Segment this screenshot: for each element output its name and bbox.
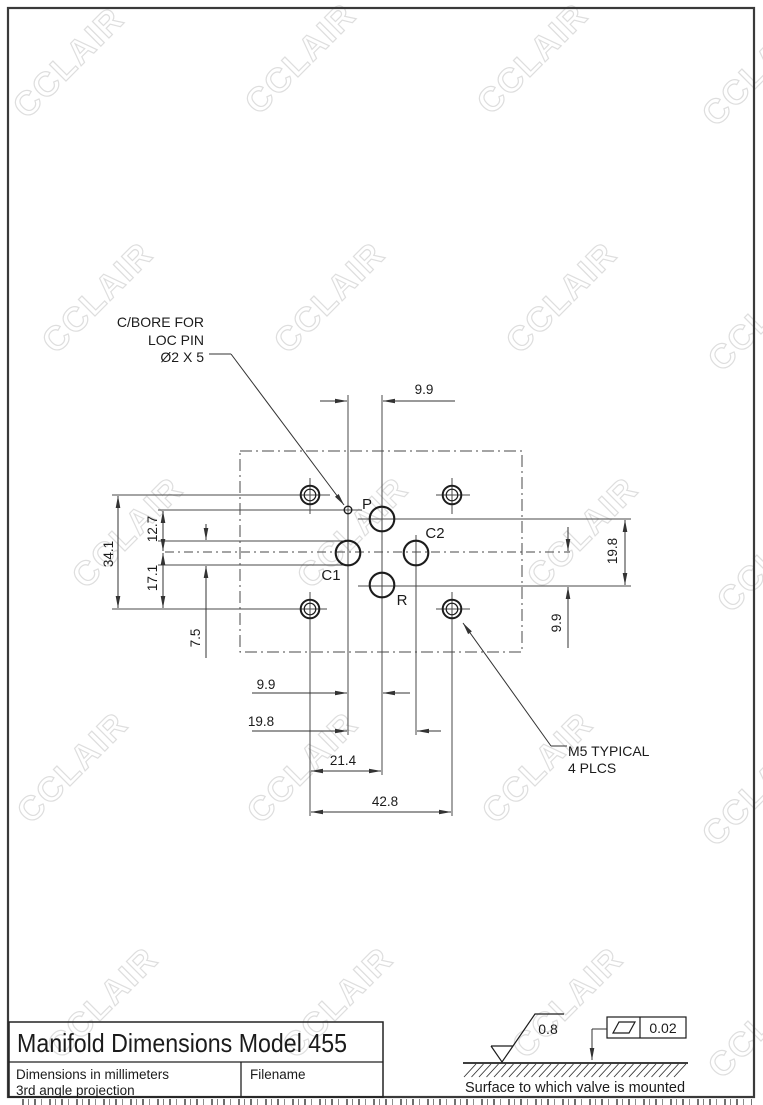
units-note: Dimensions in millimeters: [16, 1067, 169, 1082]
cut-off-text-strip: [22, 1099, 752, 1105]
dim-bottom-c1-c2: 19.8: [248, 714, 274, 729]
dim-port-width: 7.5: [188, 629, 203, 648]
drawing-title: Manifold Dimensions Model 455: [17, 1028, 347, 1058]
roughness-value: 0.8: [538, 1021, 558, 1037]
watermark-text: CCLAIR: [290, 470, 416, 596]
dim-bottom-bolt-center: 21.4: [330, 753, 357, 768]
watermark-text: CCLAIR: [238, 0, 364, 122]
cbore-leader: [231, 354, 344, 505]
watermark-text: CCLAIR: [505, 940, 631, 1066]
watermark-text: CCLAIR: [35, 235, 161, 361]
dim-top-width: 9.9: [415, 382, 434, 397]
label-port-c2: C2: [425, 525, 444, 542]
watermark-text: CCLAIR: [65, 470, 191, 596]
surface-note: Surface to which valve is mounted: [465, 1080, 685, 1096]
watermark-text: CCLAIR: [267, 235, 393, 361]
watermark-text: CCLAIR: [520, 470, 646, 596]
dim-bottom-bolt-span: 42.8: [372, 794, 398, 809]
m5-note-line2: 4 PLCS: [568, 760, 616, 776]
label-port-c1: C1: [321, 567, 340, 584]
watermark-layer: CCLAIRCCLAIRCCLAIRCCLAIRCCLAIRCCLAIRCCLA…: [6, 0, 763, 1086]
watermark-text: CCLAIR: [10, 705, 136, 831]
flatness-icon: [613, 1022, 635, 1033]
dim-right-lower: 9.9: [549, 614, 564, 633]
dim-right-ports: 19.8: [605, 538, 620, 564]
watermark-text: CCLAIR: [695, 728, 763, 854]
dim-left-lower: 17.1: [145, 565, 160, 591]
filename-label: Filename: [250, 1067, 306, 1082]
dim-left-upper: 12.7: [145, 516, 160, 542]
cbore-note-line3: Ø2 X 5: [160, 349, 204, 365]
manifold-drawing: CCLAIRCCLAIRCCLAIRCCLAIRCCLAIRCCLAIRCCLA…: [0, 0, 763, 1105]
watermark-text: CCLAIR: [470, 0, 596, 122]
surface-hatching: [464, 1064, 686, 1077]
m5-leader: [463, 623, 551, 746]
m5-note-line1: M5 TYPICAL: [568, 743, 650, 759]
surface-finish-detail: 0.8 0.02 Surface to which valve is mount…: [463, 1014, 688, 1096]
projection-note: 3rd angle projection: [16, 1083, 135, 1098]
cbore-note-line2: LOC PIN: [148, 332, 204, 348]
label-port-r: R: [397, 592, 408, 609]
watermark-text: CCLAIR: [6, 0, 132, 126]
watermark-text: CCLAIR: [499, 235, 625, 361]
flatness-value: 0.02: [649, 1020, 676, 1036]
label-port-p: P: [362, 496, 372, 513]
dim-left-overall: 34.1: [101, 541, 116, 567]
drawing-sheet: CCLAIRCCLAIRCCLAIRCCLAIRCCLAIRCCLAIRCCLA…: [0, 0, 763, 1105]
cbore-note-line1: C/BORE FOR: [117, 314, 204, 330]
watermark-text: CCLAIR: [695, 8, 763, 134]
dim-bottom-c1-center: 9.9: [257, 677, 276, 692]
